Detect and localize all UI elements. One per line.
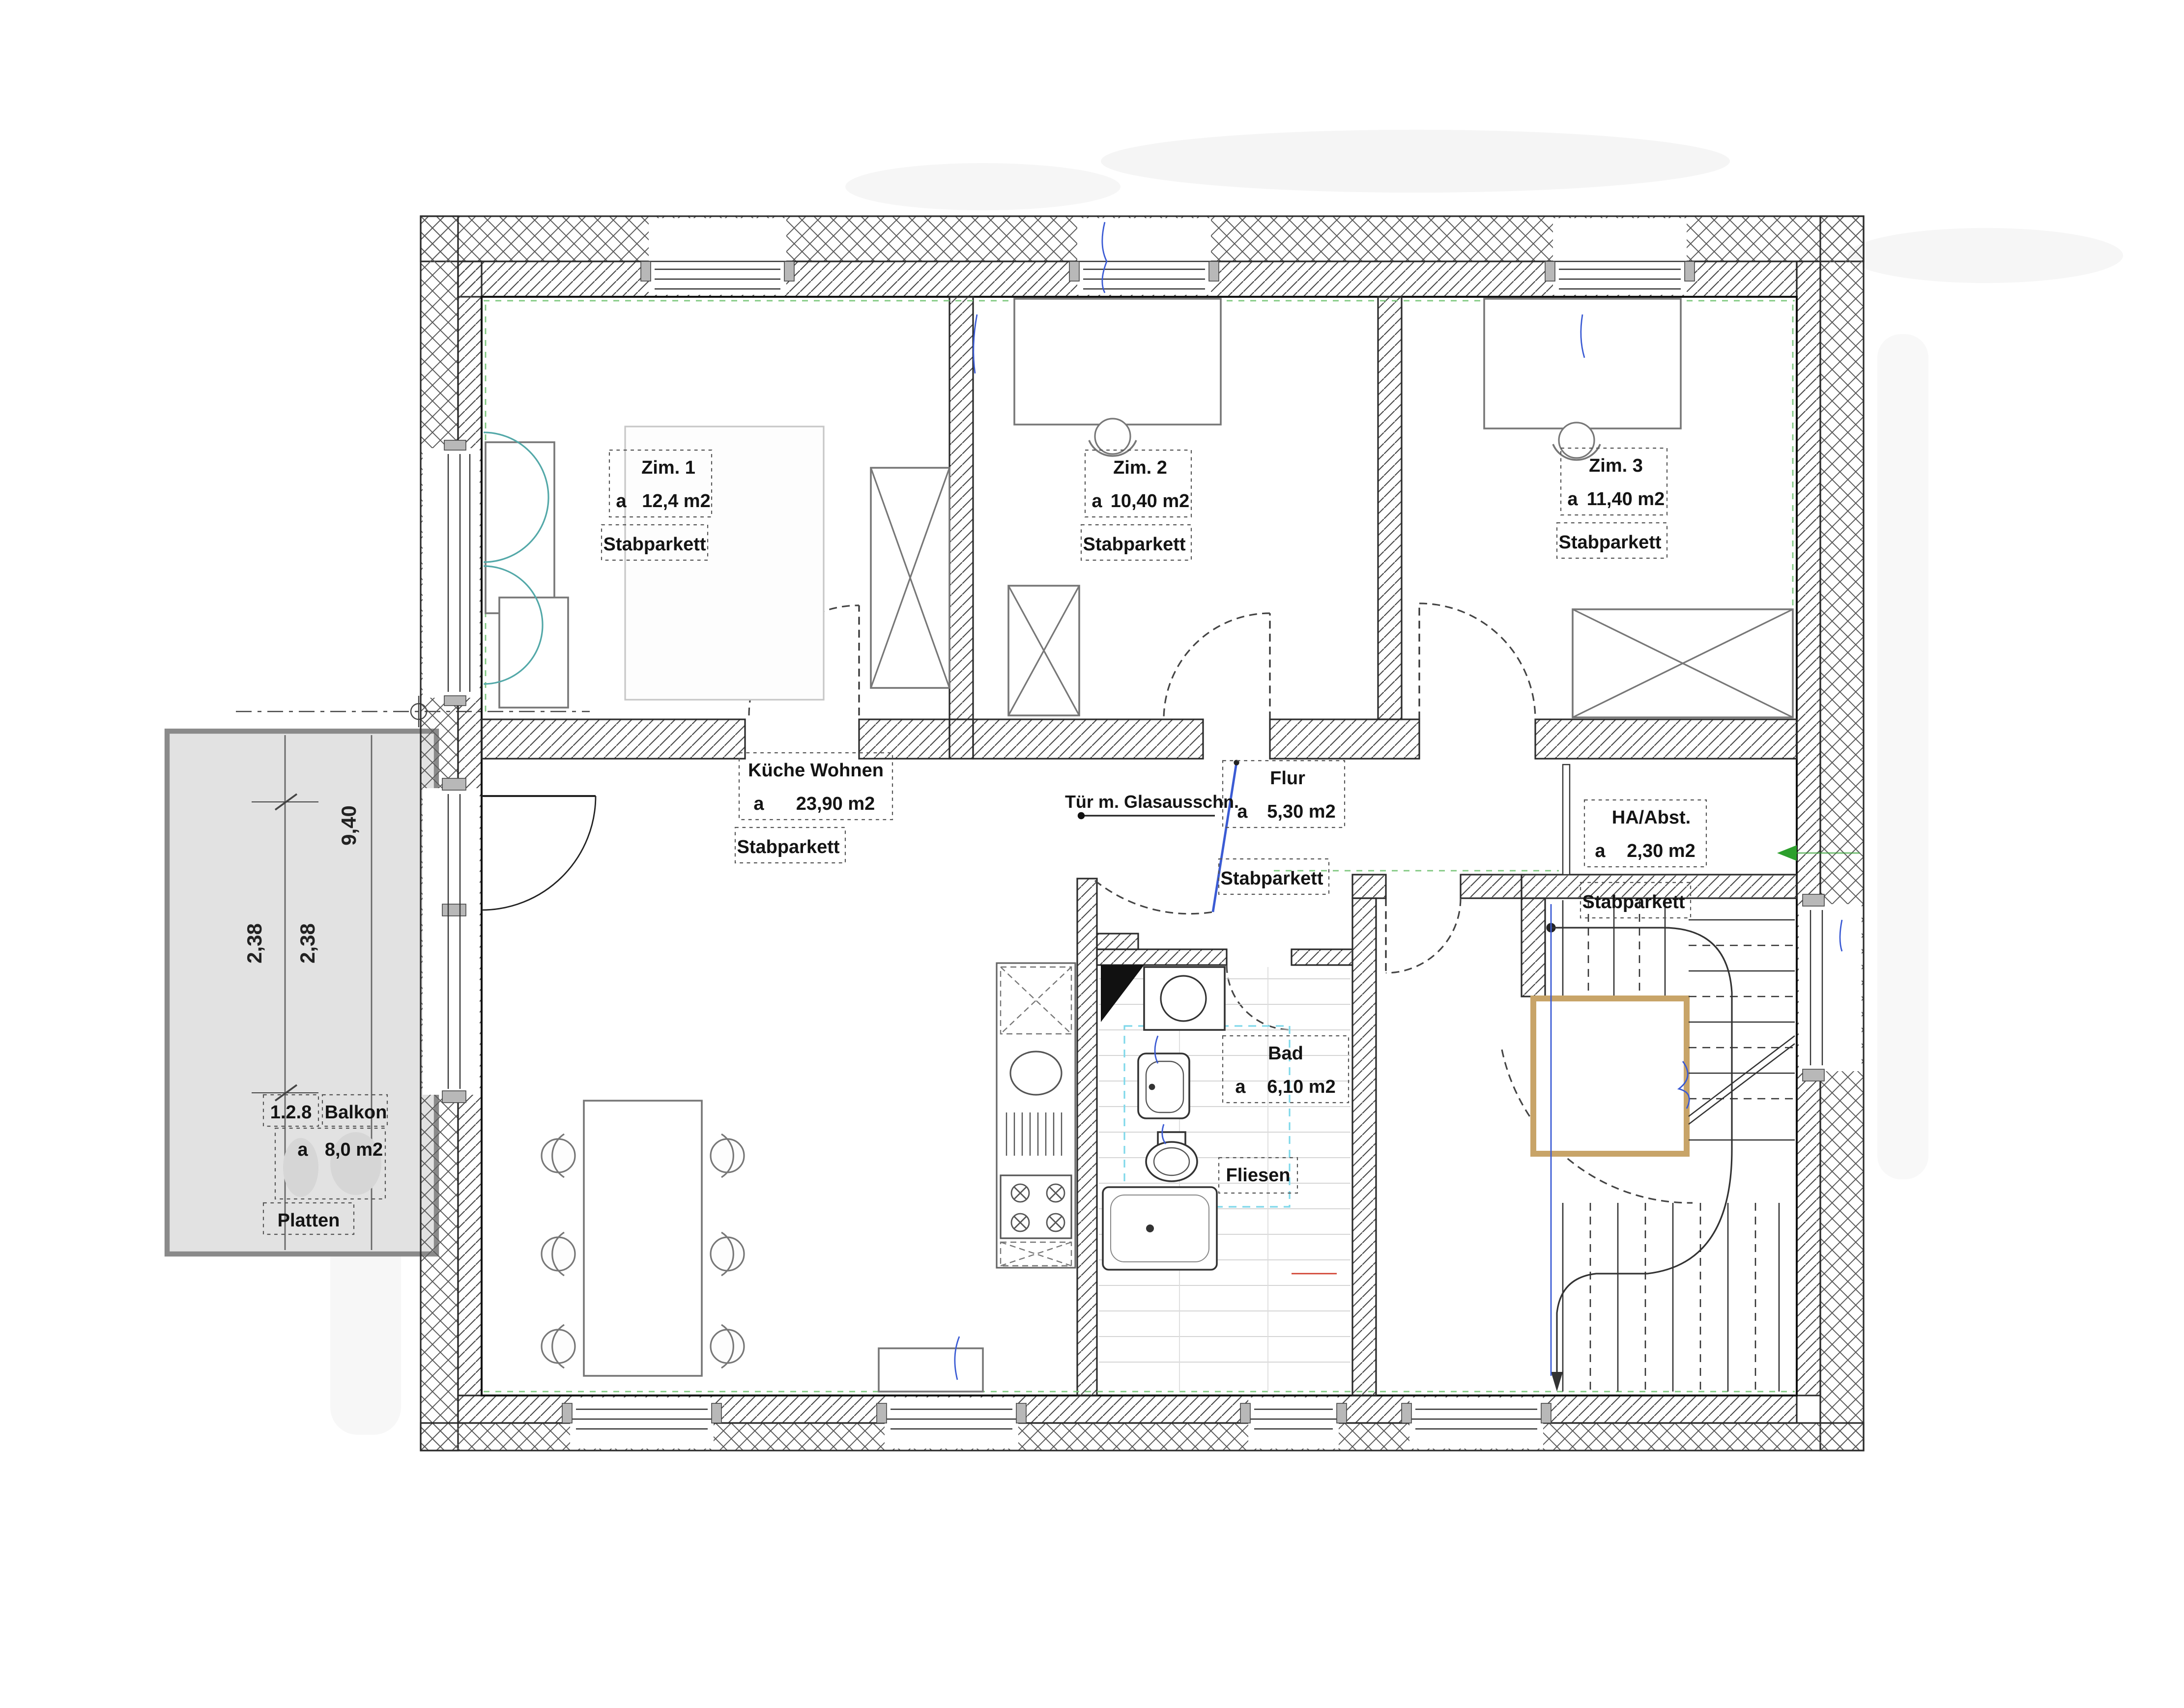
kitchen-sink-icon — [1010, 1052, 1062, 1095]
stair-treads-lower — [1563, 1203, 1779, 1392]
window-stair-bottom — [1402, 1397, 1551, 1449]
walk-line-arrow-icon — [1551, 1372, 1563, 1392]
room-label-zim3: Zim. 3 a 11,40 m2 Stabparkett — [1557, 448, 1667, 558]
leader-dot-icon — [1078, 812, 1085, 819]
door-entry — [1386, 898, 1461, 973]
floor-plan: 2,38 2,38 9,40 1.2.8 Balkon a 8,0 m2 Pla… — [0, 0, 2184, 1708]
zim3-a: a — [1567, 489, 1578, 510]
glass-door-note: Tür m. Glasausschn. — [1065, 792, 1239, 812]
zim2-wardrobe — [1008, 586, 1079, 715]
zim1-area: 12,4 m2 — [642, 491, 710, 512]
zim1-a: a — [616, 491, 627, 512]
wall-zim1-zim2 — [949, 297, 973, 719]
ha-name: HA/Abst. — [1612, 807, 1691, 828]
balkon-code: 1.2.8 — [270, 1102, 312, 1123]
zim2-area: 10,40 m2 — [1111, 491, 1190, 512]
room-label-bad: Bad a 6,10 m2 Fliesen — [1219, 1036, 1349, 1193]
glass-door-annotation: Tür m. Glasausschn. — [1065, 792, 1239, 819]
kueche-a: a — [753, 794, 764, 814]
zim2-a: a — [1092, 491, 1102, 512]
wall-bad-north-b — [1292, 949, 1352, 965]
flur-name: Flur — [1270, 768, 1305, 789]
door-zim2 — [1164, 613, 1270, 719]
wall-rooms-south-a — [482, 719, 745, 759]
balkon-a: a — [297, 1139, 308, 1160]
room-label-ha: HA/Abst. a 2,30 m2 Stabparkett — [1581, 800, 1706, 918]
bad-a: a — [1235, 1077, 1246, 1097]
wall-rooms-south-e — [1535, 719, 1797, 759]
stair-treads-right — [1689, 920, 1795, 1140]
wall-rooms-south-b — [859, 719, 949, 759]
window-zim2-top — [1069, 218, 1219, 295]
zim3-wardrobe — [1573, 609, 1793, 717]
zim1-floor: Stabparkett — [603, 534, 706, 555]
wall-zim2-zim3 — [1378, 297, 1402, 719]
zim1-bed-2 — [499, 598, 568, 708]
zim3-name: Zim. 3 — [1589, 455, 1643, 476]
window-zim1-left — [423, 440, 480, 706]
door-glass-flur — [1095, 760, 1239, 913]
door-zim3 — [1419, 603, 1535, 719]
window-bad-bottom — [1240, 1397, 1347, 1449]
zim1-wardrobe — [871, 468, 949, 688]
dim-238-b: 2,38 — [296, 923, 319, 964]
wall-vestibule-north-a — [1352, 875, 1386, 898]
wall-vestibule-north-b — [1461, 875, 1522, 898]
balkon-name: Balkon — [325, 1102, 387, 1123]
room-label-flur: Flur a 5,30 m2 Stabparkett — [1219, 761, 1345, 894]
stair-treads-upper — [1563, 900, 1665, 996]
wall-kueche-bad — [1077, 879, 1097, 1395]
wall-bad-north-a — [1097, 949, 1227, 965]
sideboard — [879, 1348, 983, 1392]
wall-stair-west — [1522, 898, 1545, 996]
partition-ha-glass — [1563, 765, 1570, 875]
room-label-zim2: Zim. 2 a 10,40 m2 Stabparkett — [1081, 450, 1191, 560]
window-kueche-bottom-2 — [877, 1397, 1026, 1449]
wall-right-outer — [1820, 216, 1864, 1451]
shower-icon — [1103, 1187, 1217, 1270]
wall-rooms-south-c — [973, 719, 1203, 759]
bad-floor: Fliesen — [1226, 1165, 1291, 1186]
zim3-area: 11,40 m2 — [1587, 489, 1665, 510]
dim-238-a: 2,38 — [243, 923, 266, 964]
window-zim1-top — [641, 218, 794, 295]
kitchen-counter — [997, 963, 1075, 1268]
dim-940: 9,40 — [337, 805, 360, 846]
window-zim3-top — [1545, 218, 1695, 295]
washing-machine-icon — [1144, 967, 1225, 1030]
ha-floor: Stabparkett — [1582, 892, 1685, 912]
duct-icon — [1101, 965, 1144, 1022]
flur-floor: Stabparkett — [1220, 868, 1323, 889]
wall-rooms-south-d — [1270, 719, 1419, 759]
zim2-floor: Stabparkett — [1083, 534, 1185, 555]
zim2-desk — [1014, 299, 1221, 425]
window-stair-right — [1799, 894, 1862, 1081]
bad-name: Bad — [1268, 1043, 1303, 1064]
balkon-floor: Platten — [278, 1210, 340, 1231]
glass-door-leaf — [1213, 763, 1236, 912]
bathroom-sink-icon — [1138, 1053, 1189, 1118]
stairwell-opening — [1533, 998, 1687, 1154]
wall-right-inner — [1797, 261, 1820, 1395]
zim3-floor: Stabparkett — [1558, 532, 1661, 553]
kueche-name: Küche Wohnen — [748, 760, 884, 781]
ha-area: 2,30 m2 — [1627, 841, 1695, 861]
room-label-zim1: Zim. 1 a 12,4 m2 Stabparkett — [602, 450, 712, 560]
zim1-name: Zim. 1 — [641, 457, 695, 478]
dining-table — [584, 1101, 702, 1376]
kueche-floor: Stabparkett — [737, 837, 839, 857]
staircase — [1533, 900, 1795, 1392]
stair-walk-line — [1546, 923, 1732, 1392]
zim3-chair — [1559, 423, 1594, 458]
balkon-area: 8,0 m2 — [325, 1139, 383, 1160]
zim1-bed — [486, 442, 554, 613]
door-bad — [1227, 965, 1292, 1030]
zim1-furniture — [484, 427, 949, 708]
bathroom — [1099, 965, 1351, 1392]
flur-area: 5,30 m2 — [1267, 801, 1335, 822]
bad-area: 6,10 m2 — [1267, 1077, 1335, 1097]
zim2-chair — [1095, 419, 1130, 454]
ha-a: a — [1595, 841, 1606, 861]
room-label-kueche: Küche Wohnen a 23,90 m2 Stabparkett — [735, 753, 892, 863]
toilet-icon — [1146, 1132, 1197, 1181]
balcony-door — [423, 778, 596, 1103]
balcony: 2,38 2,38 9,40 1.2.8 Balkon a 8,0 m2 Pla… — [167, 696, 590, 1254]
green-arrow-icon — [1777, 845, 1797, 861]
stove-icon — [1001, 1175, 1071, 1238]
window-kueche-bottom-1 — [562, 1397, 721, 1449]
wall-bad-east — [1352, 898, 1376, 1395]
zim2-name: Zim. 2 — [1113, 457, 1167, 478]
balcony-door-swing — [482, 796, 596, 910]
dining-set — [542, 1101, 983, 1392]
kueche-area: 23,90 m2 — [796, 794, 875, 814]
